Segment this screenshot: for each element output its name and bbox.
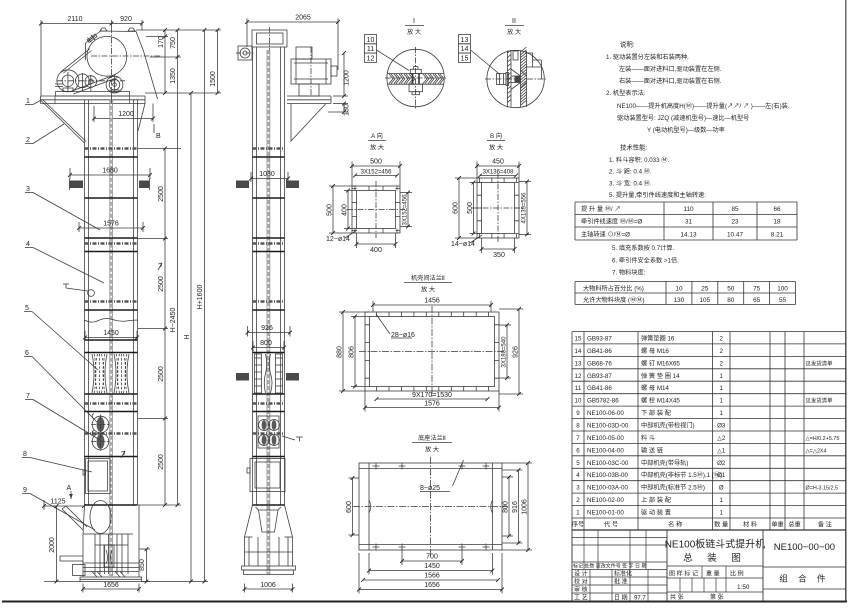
svg-text:GB68-76: GB68-76 — [587, 360, 612, 367]
svg-text:放 大: 放 大 — [370, 144, 384, 152]
svg-text:3. 斗 宽: 0.4 Ⓜ.: 3. 斗 宽: 0.4 Ⓜ. — [609, 180, 652, 188]
svg-text:14: 14 — [575, 348, 582, 355]
svg-text:2500: 2500 — [158, 366, 165, 382]
svg-text:校 对: 校 对 — [574, 578, 588, 586]
svg-text:1656: 1656 — [424, 582, 440, 589]
svg-text:2: 2 — [719, 360, 723, 367]
svg-text:GB93-87: GB93-87 — [587, 373, 612, 380]
svg-text:NE100板链斗式提升机: NE100板链斗式提升机 — [665, 538, 766, 551]
svg-text:23: 23 — [731, 219, 739, 226]
svg-text:△=△2X4: △=△2X4 — [806, 448, 827, 454]
svg-text:600: 600 — [346, 501, 353, 513]
svg-text:500: 500 — [467, 202, 474, 214]
svg-text:1030: 1030 — [259, 171, 275, 178]
svg-text:设 计: 设 计 — [574, 570, 588, 578]
svg-text:I: I — [413, 18, 415, 25]
svg-text:A 向: A 向 — [371, 132, 383, 140]
svg-text:13: 13 — [461, 37, 469, 44]
svg-text:10: 10 — [675, 286, 683, 293]
svg-text:11: 11 — [367, 46, 374, 53]
svg-text:10: 10 — [367, 37, 375, 44]
svg-text:底座法兰Ⅱ: 底座法兰Ⅱ — [418, 434, 446, 442]
svg-text:备 注: 备 注 — [818, 521, 832, 529]
svg-text:1: 1 — [719, 497, 723, 504]
svg-text:1656: 1656 — [103, 582, 119, 589]
svg-text:1. 料斗容积: 0.033 Ⓜ.: 1. 料斗容积: 0.033 Ⓜ. — [609, 156, 669, 164]
svg-text:单重: 单重 — [771, 521, 783, 529]
svg-text:1450: 1450 — [424, 563, 440, 570]
svg-text:机壳间法兰Ⅱ: 机壳间法兰Ⅱ — [411, 274, 445, 282]
svg-text:材 料: 材 料 — [743, 521, 757, 529]
svg-text:3: 3 — [576, 485, 580, 492]
svg-text:500: 500 — [370, 159, 382, 166]
svg-text:750: 750 — [170, 37, 177, 49]
svg-text:输 送 链: 输 送 链 — [641, 446, 664, 454]
svg-text:3X152=456: 3X152=456 — [361, 170, 393, 176]
svg-text:1: 1 — [719, 385, 723, 392]
svg-text:5. 填充系数按 0.7计算.: 5. 填充系数按 0.7计算. — [612, 244, 675, 252]
svg-text:1200: 1200 — [118, 111, 134, 118]
svg-text:NE100-03D-00: NE100-03D-00 — [587, 423, 629, 430]
svg-text:日 期: 日 期 — [614, 594, 628, 602]
svg-text:5: 5 — [576, 460, 580, 467]
svg-text:916: 916 — [512, 501, 519, 513]
svg-text:97.7: 97.7 — [634, 596, 646, 602]
svg-text:66: 66 — [773, 206, 781, 213]
svg-text:驱动装置型号: JZQ (减速机型号)—速比—机型号: 驱动装置型号: JZQ (减速机型号)—速比—机型号 — [617, 114, 749, 122]
svg-text:850: 850 — [139, 559, 146, 571]
svg-text:NE100-03A-00: NE100-03A-00 — [587, 485, 628, 492]
svg-text:800: 800 — [260, 340, 272, 347]
svg-text:2: 2 — [26, 137, 30, 144]
svg-text:8−ø25: 8−ø25 — [420, 485, 440, 492]
svg-text:中部机壳(带检视门): 中部机壳(带检视门) — [641, 422, 695, 430]
svg-text:NE100-04-00: NE100-04-00 — [587, 447, 624, 454]
svg-text:名 称: 名 称 — [668, 521, 682, 529]
svg-text:3X136=408: 3X136=408 — [483, 170, 515, 176]
svg-text:5. 提升量,牵引件线速度和主轴转速:: 5. 提升量,牵引件线速度和主轴转速: — [609, 191, 706, 199]
svg-text:14.13: 14.13 — [681, 231, 697, 238]
svg-text:2110: 2110 — [67, 16, 82, 23]
svg-text:7. 物料块度:: 7. 物料块度: — [612, 269, 646, 277]
svg-text:序号: 序号 — [572, 521, 584, 529]
svg-text:926: 926 — [513, 346, 520, 358]
svg-text:驱 动 装 置: 驱 动 装 置 — [641, 509, 671, 517]
svg-text:NE100-05-00: NE100-05-00 — [587, 435, 624, 442]
svg-text:工 艺: 工 艺 — [574, 594, 588, 602]
svg-text:12−ø14: 12−ø14 — [326, 236, 350, 243]
svg-text:85: 85 — [731, 206, 739, 213]
svg-text:GB41-86: GB41-86 — [587, 348, 612, 355]
svg-text:1576: 1576 — [103, 221, 119, 228]
svg-text:65: 65 — [753, 297, 761, 304]
svg-text:Ø: Ø — [719, 485, 724, 492]
svg-text:400: 400 — [342, 204, 349, 216]
svg-text:2500: 2500 — [158, 276, 165, 292]
svg-text:6: 6 — [25, 350, 29, 357]
svg-text:10.47: 10.47 — [727, 231, 743, 238]
svg-text:允许大物料块度 (ⓂⓂ): 允许大物料块度 (ⓂⓂ) — [583, 296, 645, 304]
svg-text:1500: 1500 — [210, 71, 217, 87]
svg-text:A: A — [67, 485, 72, 492]
svg-text:5: 5 — [25, 305, 29, 312]
svg-text:2065: 2065 — [295, 15, 311, 22]
svg-text:2500: 2500 — [158, 454, 165, 470]
svg-text:4X139=556: 4X139=556 — [522, 192, 528, 224]
svg-text:800: 800 — [503, 501, 510, 513]
svg-text:1: 1 — [26, 98, 30, 105]
svg-text:审 核: 审 核 — [574, 586, 588, 594]
svg-text:Ø2: Ø2 — [717, 460, 726, 467]
svg-text:3X180=540: 3X180=540 — [502, 336, 508, 368]
svg-text:标记 处数 更改文件号 签 字 日 期: 标记 处数 更改文件号 签 字 日 期 — [573, 563, 646, 570]
svg-text:9: 9 — [576, 410, 580, 417]
svg-text:1: 1 — [576, 510, 580, 517]
svg-text:H: H — [184, 334, 191, 339]
svg-text:4: 4 — [576, 472, 580, 479]
svg-text:1576: 1576 — [424, 401, 440, 408]
svg-text:放 大: 放 大 — [407, 28, 421, 36]
svg-text:B 向: B 向 — [490, 132, 502, 140]
svg-text:10: 10 — [575, 398, 582, 405]
svg-text:Ø=H-3.15/2.5: Ø=H-3.15/2.5 — [806, 486, 839, 492]
svg-text:1680: 1680 — [102, 168, 118, 175]
svg-text:NE100−00−00: NE100−00−00 — [774, 542, 835, 553]
svg-text:2: 2 — [719, 336, 723, 343]
svg-text:第 张: 第 张 — [710, 593, 724, 601]
svg-text:重 量: 重 量 — [706, 570, 720, 578]
svg-text:6: 6 — [576, 447, 580, 454]
svg-text:H−2450: H−2450 — [170, 308, 177, 333]
svg-text:350: 350 — [493, 252, 505, 259]
svg-text:1: 1 — [719, 510, 723, 517]
svg-text:14−ø14: 14−ø14 — [451, 241, 475, 248]
svg-text:1450: 1450 — [103, 330, 119, 337]
svg-text:标准化: 标准化 — [614, 570, 632, 578]
svg-text:中部机壳(非标节 1.5Ⓜ),1 (Ⓜ): 中部机壳(非标节 1.5Ⓜ),1 (Ⓜ) — [641, 471, 722, 479]
svg-text:110: 110 — [683, 206, 694, 213]
svg-text:2: 2 — [576, 497, 580, 504]
svg-text:△2: △2 — [717, 435, 726, 442]
svg-text:右装——面对进料口,驱动装置在右侧.: 右装——面对进料口,驱动装置在右侧. — [619, 77, 722, 85]
svg-text:1350: 1350 — [170, 68, 177, 84]
svg-text:50: 50 — [727, 286, 735, 293]
svg-text:12: 12 — [575, 373, 582, 380]
svg-text:技术性能:: 技术性能: — [620, 143, 648, 152]
svg-text:组 合 件: 组 合 件 — [779, 574, 829, 584]
svg-text:55: 55 — [779, 297, 787, 304]
svg-text:GB93-87: GB93-87 — [587, 336, 612, 343]
svg-text:400: 400 — [370, 247, 382, 254]
svg-text:15: 15 — [461, 55, 469, 62]
svg-text:△1: △1 — [717, 447, 726, 454]
svg-text:NE100-03C-00: NE100-03C-00 — [587, 460, 629, 467]
svg-text:600: 600 — [453, 202, 460, 214]
svg-text:H+1600: H+1600 — [197, 285, 204, 310]
svg-text:105: 105 — [700, 297, 711, 304]
svg-text:1006: 1006 — [522, 499, 529, 515]
svg-text:NE100——提升机高度H(Ⓜ)——提升量(↗↗/ ↗: NE100——提升机高度H(Ⓜ)——提升量(↗↗/ ↗ )——左(右)装. — [617, 102, 790, 110]
svg-text:△=H/0.2+5.75: △=H/0.2+5.75 — [806, 436, 840, 442]
svg-text:见发货清单: 见发货清单 — [806, 359, 834, 367]
svg-text:批 准: 批 准 — [614, 578, 628, 586]
svg-text:1: 1 — [719, 410, 723, 417]
svg-text:Y (电动机型号)—级数—功率: Y (电动机型号)—级数—功率 — [647, 126, 725, 134]
svg-text:31: 31 — [685, 219, 693, 226]
svg-text:螺 钉 M16X65: 螺 钉 M16X65 — [641, 359, 680, 367]
svg-text:Ø1: Ø1 — [717, 472, 726, 479]
svg-text:共 张: 共 张 — [670, 593, 684, 601]
svg-text:图 样 标 记: 图 样 标 记 — [669, 570, 698, 578]
svg-text:NE100-01-00: NE100-01-00 — [587, 510, 624, 517]
svg-text:4: 4 — [26, 241, 30, 248]
svg-text:2: 2 — [719, 348, 723, 355]
svg-text:920: 920 — [120, 16, 132, 23]
svg-text:926: 926 — [261, 325, 273, 332]
svg-text:牵引件线速度 Ⓜ/Ⓜ=Ø: 牵引件线速度 Ⓜ/Ⓜ=Ø — [581, 218, 643, 226]
svg-text:806: 806 — [349, 346, 356, 358]
svg-text:100: 100 — [777, 286, 788, 293]
svg-text:B: B — [156, 133, 161, 140]
svg-text:130: 130 — [674, 297, 685, 304]
svg-text:Ø3: Ø3 — [717, 423, 726, 430]
svg-text:中部机壳(带导轨): 中部机壳(带导轨) — [641, 459, 688, 467]
svg-text:螺 母 M16: 螺 母 M16 — [641, 347, 669, 355]
svg-text:9X170=1530: 9X170=1530 — [412, 392, 452, 399]
svg-text:下 部 装 配: 下 部 装 配 — [641, 409, 671, 417]
svg-text:130: 130 — [344, 104, 351, 116]
svg-text:3X152=456: 3X152=456 — [403, 194, 409, 226]
svg-text:NE100-02-00: NE100-02-00 — [587, 497, 624, 504]
svg-text:2500: 2500 — [158, 186, 165, 202]
svg-text:1: 1 — [719, 398, 723, 405]
svg-text:提 升 量 Ⓜ/ ↗: 提 升 量 Ⓜ/ ↗ — [581, 205, 621, 213]
svg-text:700: 700 — [426, 554, 438, 561]
svg-text:NE100-06-00: NE100-06-00 — [587, 410, 624, 417]
svg-text:数 量: 数 量 — [714, 521, 728, 529]
svg-text:螺 母 M14: 螺 母 M14 — [641, 384, 669, 392]
svg-text:代 号: 代 号 — [604, 521, 618, 529]
svg-text:500: 500 — [327, 204, 334, 216]
svg-text:75: 75 — [753, 286, 761, 293]
svg-text:总 装 图: 总 装 图 — [683, 552, 747, 564]
svg-text:25: 25 — [701, 286, 709, 293]
svg-text:放 大: 放 大 — [425, 446, 439, 454]
svg-text:13: 13 — [575, 360, 582, 367]
svg-text:放 大: 放 大 — [421, 286, 435, 294]
svg-text:见发货清单: 见发货清单 — [806, 397, 834, 405]
svg-text:450: 450 — [492, 159, 504, 166]
svg-text:放 大: 放 大 — [489, 144, 503, 152]
svg-text:2000: 2000 — [49, 537, 56, 553]
svg-text:中部机壳(标准节 2.5Ⓜ): 中部机壳(标准节 2.5Ⓜ) — [641, 484, 705, 492]
svg-text:1006: 1006 — [260, 582, 276, 589]
svg-text:比 例: 比 例 — [730, 570, 744, 578]
svg-text:1566: 1566 — [424, 573, 440, 580]
svg-text:8: 8 — [576, 423, 580, 430]
svg-text:II: II — [512, 18, 516, 25]
svg-text:1:50: 1:50 — [737, 584, 750, 591]
svg-text:1. 驱动装置分左装和右装两种.: 1. 驱动装置分左装和右装两种. — [606, 53, 689, 61]
svg-text:螺 栓 M14X45: 螺 栓 M14X45 — [641, 397, 680, 405]
svg-text:1: 1 — [719, 373, 723, 380]
svg-text:880: 880 — [337, 346, 344, 358]
svg-text:7: 7 — [576, 435, 580, 442]
svg-text:大物料所占百分比 (%): 大物料所占百分比 (%) — [583, 285, 644, 293]
svg-text:主轴转速 ⊙/Ⓜ=Ø: 主轴转速 ⊙/Ⓜ=Ø — [581, 231, 630, 239]
svg-text:放 大: 放 大 — [507, 28, 521, 36]
svg-text:GB5782-86: GB5782-86 — [587, 398, 619, 405]
svg-text:8.21: 8.21 — [771, 231, 784, 238]
svg-text:GB41-86: GB41-86 — [587, 385, 612, 392]
svg-text:说明:: 说明: — [620, 40, 635, 49]
svg-text:弹簧垫圈 16: 弹簧垫圈 16 — [641, 335, 675, 343]
svg-text:弹 簧 垫 圈 14: 弹 簧 垫 圈 14 — [641, 372, 680, 380]
svg-text:3: 3 — [26, 186, 30, 193]
svg-text:1456: 1456 — [424, 298, 440, 305]
svg-text:9: 9 — [23, 487, 27, 494]
svg-text:2. 机型表示法:: 2. 机型表示法: — [606, 89, 646, 97]
svg-text:12: 12 — [367, 55, 375, 62]
svg-text:7: 7 — [26, 393, 30, 400]
svg-text:6. 牵引件安全系数 >1倍.: 6. 牵引件安全系数 >1倍. — [612, 257, 679, 265]
svg-text:18: 18 — [773, 219, 781, 226]
svg-text:左装——面对进料口,驱动装置在左侧.: 左装——面对进料口,驱动装置在左侧. — [619, 65, 722, 73]
svg-text:14: 14 — [461, 46, 469, 53]
svg-text:80: 80 — [727, 297, 735, 304]
svg-text:料 斗: 料 斗 — [641, 434, 655, 442]
svg-text:8: 8 — [23, 451, 27, 458]
svg-text:上 部 装 配: 上 部 装 配 — [641, 496, 671, 504]
svg-text:11: 11 — [575, 385, 582, 392]
svg-text:总重: 总重 — [788, 521, 800, 529]
svg-text:NE100-03B-00: NE100-03B-00 — [587, 472, 628, 479]
svg-text:1200: 1200 — [344, 70, 351, 86]
svg-text:15: 15 — [575, 336, 582, 343]
svg-text:2. 斗 距: 0.4 Ⓜ.: 2. 斗 距: 0.4 Ⓜ. — [609, 168, 652, 176]
